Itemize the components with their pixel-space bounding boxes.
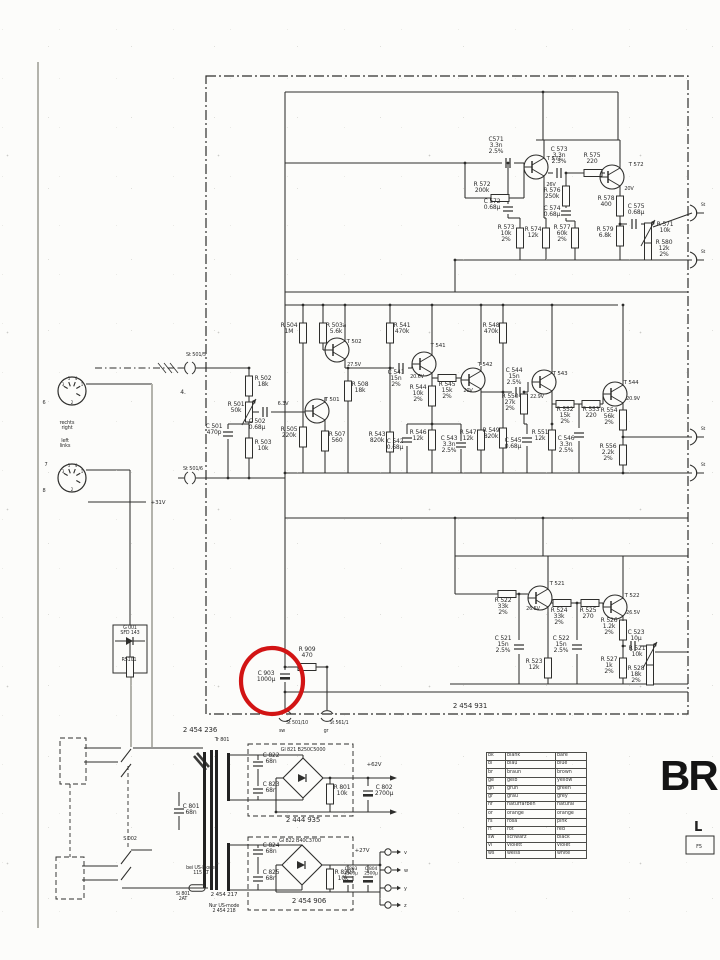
component-label: R 503a5.6k [326, 322, 347, 335]
transistor [420, 355, 432, 362]
junction-dot [367, 777, 370, 780]
legend-cell: vi [487, 843, 506, 851]
component-label: C 8022700µ [375, 784, 394, 797]
junction-dot [389, 304, 392, 307]
resistor [620, 658, 627, 678]
legend-cell: pink [556, 818, 587, 826]
wire [121, 749, 131, 762]
legend-cell: black [556, 834, 587, 842]
component-label: 27.5V [347, 362, 362, 368]
junction-dot [454, 517, 457, 520]
component-label: T 502 [346, 339, 362, 345]
electrolytic-capacitor [363, 880, 373, 883]
transistor [313, 413, 325, 420]
junction-dot [302, 304, 305, 307]
wire [121, 851, 131, 864]
component-label: R 50218k [255, 375, 272, 388]
junction-dot [454, 259, 457, 262]
component-label: R 548470k [483, 322, 500, 335]
output-terminal [385, 902, 391, 908]
legend-row: nfnaturfarbennatural [487, 802, 587, 810]
component-label: 20V [624, 186, 634, 192]
component-label: R 57310k2% [498, 224, 515, 243]
transistor [540, 384, 552, 391]
component-label: R 578400 [598, 195, 615, 208]
component-label: C 5463.3n2.5% [558, 435, 575, 454]
transistor [469, 371, 481, 378]
junction-dot [518, 593, 521, 596]
electrolytic-capacitor [363, 794, 373, 797]
junction-dot [551, 423, 554, 426]
component-label: R 549820k [483, 427, 500, 440]
legend-cell: rosa [506, 818, 556, 826]
legend-cell: green [556, 785, 587, 793]
component-label: 4. [180, 389, 186, 396]
plug-contact [185, 362, 188, 374]
junction-dot [284, 691, 287, 694]
transistor [540, 373, 552, 380]
component-label: gr [324, 728, 329, 734]
legend-cell: red [556, 826, 587, 834]
legend-row: grgraugrey [487, 793, 587, 801]
output-terminal-arrow [397, 903, 401, 907]
din-pin [69, 382, 71, 386]
resistor [429, 386, 436, 406]
junction-dot [431, 304, 434, 307]
din-pin [76, 473, 80, 475]
transistor [333, 352, 345, 359]
resistor [647, 665, 654, 685]
component-label: St 501/10 [286, 720, 308, 726]
legend-cell: schwarz [506, 834, 556, 842]
junction-dot [464, 162, 467, 165]
legend-cell: grey [556, 793, 587, 801]
component-label: 20.6V [410, 374, 425, 380]
resistor [246, 438, 253, 458]
transistor [313, 402, 325, 409]
component-label: C 8032500µ [344, 866, 358, 877]
component-label: C 501470p [206, 423, 223, 436]
component-label: R 54612k [410, 429, 427, 442]
resistor [300, 427, 307, 447]
component-label: T 542 [477, 362, 493, 368]
component-label: 20V [463, 388, 473, 394]
din-pin [74, 382, 76, 386]
component-label: R 50818k [352, 381, 369, 394]
transformer-winding [227, 843, 230, 891]
component-label: S 002 [123, 836, 137, 842]
component-label: 2 444 935 [286, 816, 320, 824]
legend-cell: gelb [506, 777, 556, 785]
din-pin [64, 473, 68, 475]
component-label: St 501/6 [183, 466, 203, 472]
component-label: G 001SFD 143 [120, 625, 139, 636]
component-label: R 54515k2% [439, 381, 456, 400]
component-label: R 55456k2% [601, 407, 618, 426]
junction-dot [622, 472, 625, 475]
plug-contact [185, 472, 188, 484]
component-label: R 54410k2% [410, 384, 427, 403]
component-label: R 576250k [544, 187, 561, 200]
resistor [517, 228, 524, 248]
component-label: F5 [696, 844, 702, 850]
output-terminal [385, 849, 391, 855]
component-label: Si 8012AT [176, 891, 190, 902]
transistor [536, 589, 548, 596]
component-label: +27V [355, 848, 370, 854]
component-label: R 553220 [583, 406, 600, 419]
component-label: C 5450.68µ [505, 437, 522, 450]
resistor [545, 658, 552, 678]
component-label: R 5261.2k2% [601, 617, 618, 636]
resistor [620, 445, 627, 465]
resistor [563, 186, 570, 206]
legend-cell: orange [556, 810, 587, 818]
component-label: 26.5V [626, 610, 641, 616]
component-label: C 82468n [263, 842, 280, 855]
junction-dot [284, 666, 287, 669]
component-label: 6 [42, 400, 45, 406]
resistor [521, 394, 528, 414]
component-label: C 82268n [263, 752, 280, 765]
component-label: R 5562.2k2% [600, 443, 617, 462]
assembly-outline [60, 738, 86, 784]
junction-dot [523, 391, 526, 394]
junction-dot [248, 477, 251, 480]
output-terminal [385, 885, 391, 891]
legend-row: wsweisswhite [487, 851, 587, 859]
component-label: R 55112k [532, 429, 549, 442]
transistor [532, 169, 544, 176]
component-label: R 52818k2% [628, 665, 645, 684]
component-label: C 5720.68µ [484, 198, 501, 211]
legend-cell: ge [487, 777, 506, 785]
resistor [500, 323, 507, 343]
component-label: R 80110k [334, 784, 351, 797]
legend-cell: naturfarben [506, 802, 556, 810]
component-label: leftlinks [60, 438, 71, 449]
legend-cell: gn [487, 785, 506, 793]
resistor [246, 376, 253, 396]
resistor [543, 228, 550, 248]
component-label: T 521 [549, 581, 565, 587]
component-label: C 5750.68µ [628, 203, 645, 216]
component-label: rechtsright [60, 420, 75, 431]
component-label: R 58012k2% [656, 239, 673, 258]
terminal-label: y [404, 886, 407, 892]
component-label: 2 454 236 [183, 726, 218, 734]
din-pin [76, 394, 80, 396]
legend-row: brbraunbrown [487, 769, 587, 777]
transistor [532, 158, 544, 165]
legend-row: swschwarzblack [487, 834, 587, 842]
din-pin [69, 469, 71, 473]
junction-dot [622, 304, 625, 307]
legend-cell: grau [506, 793, 556, 801]
legend-cell: br [487, 769, 506, 777]
component-label: St 501/5 [186, 352, 206, 358]
legend-cell: sw [487, 834, 506, 842]
resistor [620, 410, 627, 430]
component-label: R 52233k2% [495, 597, 512, 616]
junction-dot [565, 172, 568, 175]
legend-cell: rs [487, 818, 506, 826]
component-label: C 82568n [263, 869, 280, 882]
legend-cell: blau [506, 761, 556, 769]
legend-cell: violett [506, 843, 556, 851]
legend-cell: orange [506, 810, 556, 818]
schematic-page: vwyzC5713.3n2.5%R 572200kT 57126VC 5733.… [0, 0, 720, 960]
transistor [611, 598, 623, 605]
junction-dot [329, 777, 332, 780]
component-label: C 54415n2.5% [506, 367, 523, 386]
component-label: R 507560 [329, 431, 346, 444]
assembly-outline [56, 857, 84, 899]
electrolytic-capacitor [280, 677, 290, 680]
component-label: R 57110k [657, 221, 674, 234]
resistor [327, 869, 334, 889]
junction-dot [502, 304, 505, 307]
resistor [553, 600, 571, 607]
component-label: R 5271k2% [601, 656, 618, 675]
component-label: 2 454 931 [453, 702, 487, 710]
legend-cell: violet [556, 843, 587, 851]
legend-cell: blank [506, 753, 556, 761]
component-label: T 541 [430, 343, 446, 349]
junction-dot [326, 666, 329, 669]
output-terminal-arrow [397, 850, 401, 854]
component-label: 2 [71, 400, 74, 405]
legend-cell: blue [556, 761, 587, 769]
wire [121, 764, 131, 777]
wire [121, 867, 131, 880]
din-pin [76, 386, 80, 388]
junction-dot [431, 423, 434, 426]
transistor [611, 609, 623, 616]
legend-cell: grün [506, 785, 556, 793]
resistor [572, 228, 579, 248]
component-label: C 5733.3n2.5% [551, 146, 568, 165]
component-label: R 57760k2% [554, 224, 571, 243]
component-label: 8 [42, 488, 45, 494]
plug-contact [192, 362, 195, 374]
legend-cell: yellow [556, 777, 587, 785]
legend-cell: ws [487, 851, 506, 859]
component-label: R 572200k [474, 181, 491, 194]
resistor [429, 430, 436, 450]
bridge-rectifier-diode [297, 861, 305, 869]
legend-cell: or [487, 810, 506, 818]
component-label: C 8042500µ [364, 866, 378, 877]
component-label: R 909470 [299, 646, 316, 659]
terminal-label: z [404, 903, 407, 909]
color-legend-table: bkblankbareblblaubluebrbraunbrowngegelby… [486, 752, 587, 859]
output-terminal-arrow [397, 886, 401, 890]
component-label: C5713.3n2.5% [488, 136, 503, 155]
resistor [322, 431, 329, 451]
component-label: 2 [71, 487, 74, 492]
legend-cell: braun [506, 769, 556, 777]
resistor [549, 430, 556, 450]
legend-cell: weiss [506, 851, 556, 859]
component-label: 7 [44, 462, 47, 468]
component-label: St [701, 462, 706, 468]
schematic-canvas: vwyzC5713.3n2.5%R 572200kT 57126VC 5733.… [0, 0, 720, 960]
legend-cell: bl [487, 761, 506, 769]
component-label: St [701, 426, 706, 432]
terminal-label: w [404, 868, 408, 874]
brand-sub-label: L [694, 820, 702, 835]
component-label: R 55027k2% [502, 393, 519, 412]
transistor [333, 341, 345, 348]
terminal-label: v [404, 850, 407, 856]
component-label: R 541470k [394, 322, 411, 335]
component-label: sw [279, 729, 285, 734]
junction-dot [379, 864, 382, 867]
component-label: C 82368n [263, 781, 280, 794]
transistor [608, 168, 620, 175]
brand-logo: BR [660, 752, 717, 800]
component-label: 26.5V [526, 606, 541, 612]
component-label: Gl 821 B250C5000 [281, 747, 326, 753]
resistor [300, 323, 307, 343]
legend-cell: rot [506, 826, 556, 834]
legend-cell: white [556, 851, 587, 859]
component-label: C 5420.68µ [387, 438, 404, 451]
component-label: R 54712k [460, 429, 477, 442]
component-label: T 501 [324, 397, 340, 403]
component-label: C 52215n2.5% [553, 635, 570, 654]
component-label: R 575220 [584, 152, 601, 165]
resistor [617, 196, 624, 216]
junction-dot [344, 304, 347, 307]
component-label: R 505220k [281, 426, 298, 439]
junction-dot [275, 811, 278, 814]
component-label: Tr 801 [214, 737, 230, 743]
transformer-winding [227, 753, 230, 801]
junction-dot [507, 162, 510, 165]
transistor [611, 385, 623, 392]
component-label: R 55215k2% [557, 406, 574, 425]
arrow [390, 809, 397, 814]
component-label: St [701, 249, 706, 255]
legend-row: ororangeorange [487, 810, 587, 818]
legend-row: rsrosapink [487, 818, 587, 826]
output-terminal [385, 867, 391, 873]
component-label: Gl 822 B40C3700 [279, 838, 321, 844]
din-pin [64, 386, 68, 388]
component-label: T 522 [624, 593, 640, 599]
resistor [387, 323, 394, 343]
component-label: St [701, 202, 706, 208]
resistor [581, 600, 599, 607]
legend-row: gegelbyellow [487, 777, 587, 785]
component-label: R 525270 [580, 607, 597, 620]
resistor [584, 170, 602, 177]
component-label: C 80168n [183, 803, 200, 816]
junction-dot [284, 472, 287, 475]
component-label: R 52312k [526, 658, 543, 671]
component-label: C 52310µ [628, 629, 645, 642]
din-pin [76, 481, 80, 483]
component-label: T 572 [628, 162, 644, 168]
legend-cell: gr [487, 793, 506, 801]
junction-dot [542, 91, 545, 94]
component-label: R 50150k [228, 401, 245, 414]
component-label: T 544 [623, 380, 640, 386]
component-label: 6.3V [278, 401, 290, 407]
component-label: R 5041M [281, 322, 298, 335]
component-label: Nur US-mode2 454 218 [209, 903, 240, 914]
legend-row: viviolettviolet [487, 843, 587, 851]
legend-cell: bk [487, 753, 506, 761]
component-label: 20.9V [626, 396, 641, 402]
resistor [620, 620, 627, 640]
component-label: R 5796.8k [597, 226, 614, 239]
legend-row: bkblankbare [487, 753, 587, 761]
din-pin [74, 469, 76, 473]
resistor [345, 381, 352, 401]
component-label: C 5433.3n2.5% [441, 435, 458, 454]
component-label: T 543 [552, 371, 569, 377]
transistor [608, 179, 620, 186]
legend-row: rtrotred [487, 826, 587, 834]
component-label: R 57412k [525, 226, 542, 239]
legend-cell: natural [556, 802, 587, 810]
resistor [617, 226, 624, 246]
junction-dot [622, 436, 625, 439]
legend-row: gngrüngreen [487, 785, 587, 793]
legend-cell: bare [556, 753, 587, 761]
legend-cell: rt [487, 826, 506, 834]
resistor [327, 784, 334, 804]
transistor [611, 396, 623, 403]
component-label: +62V [367, 762, 382, 768]
output-terminal-arrow [397, 868, 401, 872]
component-label: R 52433k2% [551, 607, 568, 626]
component-label: C 5020.68µ [249, 418, 266, 431]
component-label: C 9031000µ [257, 670, 276, 683]
component-label: R 543820k [369, 431, 386, 444]
component-label: R 52110k [629, 645, 646, 658]
component-label: 22.9V [530, 394, 545, 400]
component-label: +31V [151, 500, 166, 506]
legend-cell: brown [556, 769, 587, 777]
component-label: C 52115n2.5% [495, 635, 512, 654]
component-label: 2 454 906 [292, 897, 327, 905]
component-label: St 561/1 [329, 720, 348, 726]
junction-dot [542, 517, 545, 520]
legend-cell: nf [487, 802, 506, 810]
junction-dot [322, 304, 325, 307]
junction-dot [551, 304, 554, 307]
transistor [420, 366, 432, 373]
component-label: C 5740.68µ [544, 205, 561, 218]
junction-dot [622, 645, 625, 648]
component-label: 2 454 217 [211, 892, 238, 898]
junction-dot [619, 223, 622, 226]
junction-dot [576, 602, 579, 605]
junction-dot [480, 304, 483, 307]
arrow [390, 775, 397, 780]
junction-dot [227, 477, 230, 480]
plug-contact [192, 472, 195, 484]
junction-dot [248, 367, 251, 370]
component-label: R 50310k [255, 439, 272, 452]
legend-row: blblaublue [487, 761, 587, 769]
component-label: R5101 [122, 657, 137, 663]
bridge-rectifier-diode [298, 774, 306, 782]
